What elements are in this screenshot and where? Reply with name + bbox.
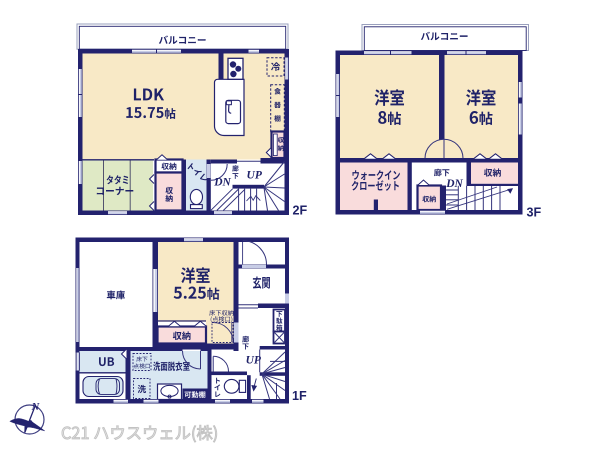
svg-text:3F: 3F	[527, 206, 542, 220]
svg-text:DN: DN	[445, 178, 463, 190]
svg-text:2F: 2F	[293, 203, 308, 217]
svg-text:1F: 1F	[292, 389, 307, 403]
svg-text:UP: UP	[247, 169, 263, 181]
svg-text:N: N	[31, 402, 40, 413]
svg-text:DN: DN	[213, 177, 231, 189]
